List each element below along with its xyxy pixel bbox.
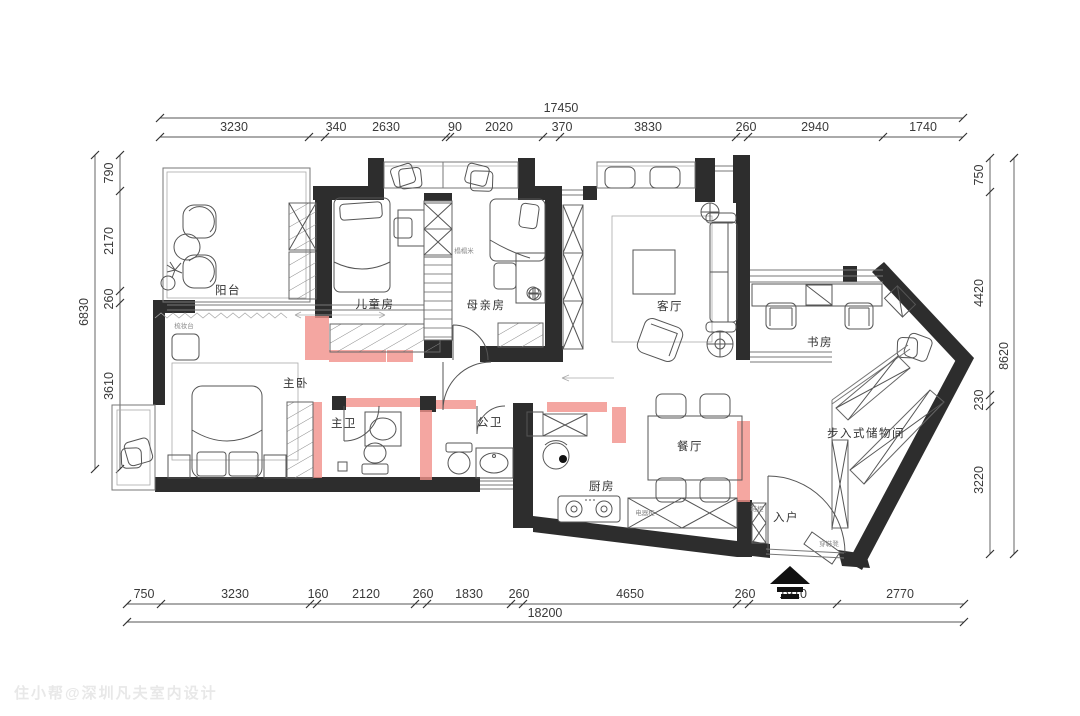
dim-left-seg-0: 790	[102, 163, 116, 184]
dim-top-seg-6: 3830	[634, 120, 662, 134]
dim-left-seg-3: 3610	[102, 372, 116, 400]
dim-left-seg-1: 2170	[102, 227, 116, 255]
dim-top-total: 17450	[544, 101, 579, 115]
dim-right-seg-3: 3220	[972, 466, 986, 494]
room-label-storage: 步入式储物间	[827, 426, 905, 440]
dim-bottom-total: 18200	[528, 606, 563, 620]
room-label-balcony: 阳台	[215, 283, 241, 297]
stove-icon	[558, 496, 620, 522]
dim-bot-seg-2: 160	[308, 587, 329, 601]
dim-bot-seg-7: 4650	[616, 587, 644, 601]
floorplan-page: 17450 3230 340 2630 90 2020 370 3830 260…	[0, 0, 1080, 716]
small-label-appliance-cabinet: 电器柜	[635, 508, 655, 517]
dim-top-seg-3: 90	[448, 120, 462, 134]
dim-top-seg-2: 2630	[372, 120, 400, 134]
floorplan-canvas: 17450 3230 340 2630 90 2020 370 3830 260…	[0, 0, 1080, 716]
room-label-living: 客厅	[657, 299, 683, 313]
small-label-dresser: 梳妆台	[174, 321, 194, 330]
small-label-shoe-cabinet: 鞋柜	[751, 504, 765, 513]
room-label-mother: 母亲房	[467, 298, 506, 312]
dim-bot-seg-6: 260	[509, 587, 530, 601]
dim-bot-seg-4: 260	[413, 587, 434, 601]
dim-right-seg-1: 4420	[972, 279, 986, 307]
room-label-guest-bath: 公卫	[477, 416, 503, 429]
dim-bot-seg-3: 2120	[352, 587, 380, 601]
dim-left-total: 6830	[77, 298, 91, 326]
dim-top-seg-4: 2020	[485, 120, 513, 134]
small-label-tatami: 榻榻米	[454, 246, 474, 255]
room-label-dining: 餐厅	[677, 439, 703, 453]
room-label-master: 主卧	[283, 377, 309, 390]
dim-right-total: 8620	[997, 342, 1011, 370]
small-label-shoe-bench: 穿鞋凳	[819, 539, 839, 548]
room-label-kitchen: 厨房	[589, 480, 615, 493]
dim-top-seg-5: 370	[552, 120, 573, 134]
divider-cabinet	[424, 201, 452, 340]
dim-bot-seg-10: 2770	[886, 587, 914, 601]
dim-left-seg-2: 260	[102, 289, 116, 310]
room-label-kids: 儿童房	[356, 297, 395, 311]
dim-top-seg-0: 3230	[220, 120, 248, 134]
dim-right-seg-0: 750	[972, 165, 986, 186]
watermark: 住小帮@深圳凡夫室内设计	[14, 684, 218, 702]
dim-top-seg-9: 1740	[909, 120, 937, 134]
room-label-master-bath: 主卫	[331, 417, 357, 430]
dim-right-seg-2: 230	[972, 390, 986, 411]
master-wardrobe	[287, 402, 313, 478]
dim-bot-seg-8: 260	[735, 587, 756, 601]
dim-bot-seg-0: 750	[134, 587, 155, 601]
dim-bot-seg-5: 1830	[455, 587, 483, 601]
dim-top-seg-1: 340	[326, 120, 347, 134]
room-label-study: 书房	[807, 336, 833, 349]
room-label-entry: 入户	[773, 510, 799, 524]
dim-top-seg-7: 260	[736, 120, 757, 134]
dim-top-seg-8: 2940	[801, 120, 829, 134]
dim-bot-seg-1: 3230	[221, 587, 249, 601]
